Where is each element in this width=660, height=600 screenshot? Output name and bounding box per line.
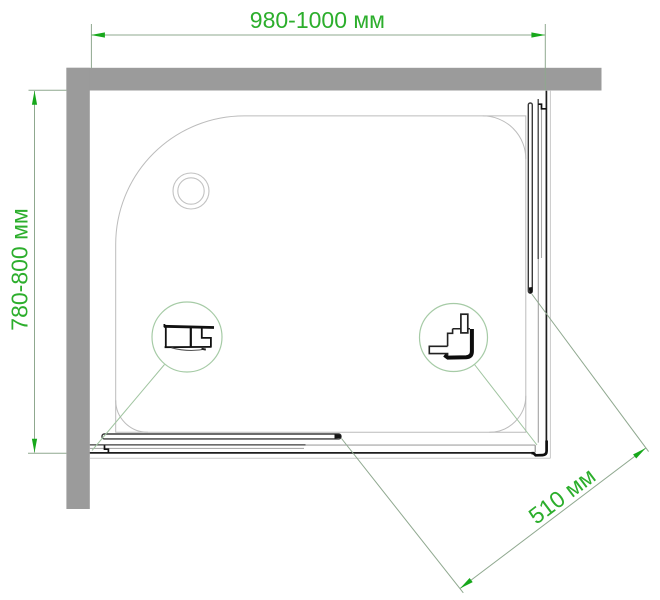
svg-text:780-800 мм: 780-800 мм	[7, 208, 33, 330]
svg-text:980-1000 мм: 980-1000 мм	[250, 7, 385, 33]
